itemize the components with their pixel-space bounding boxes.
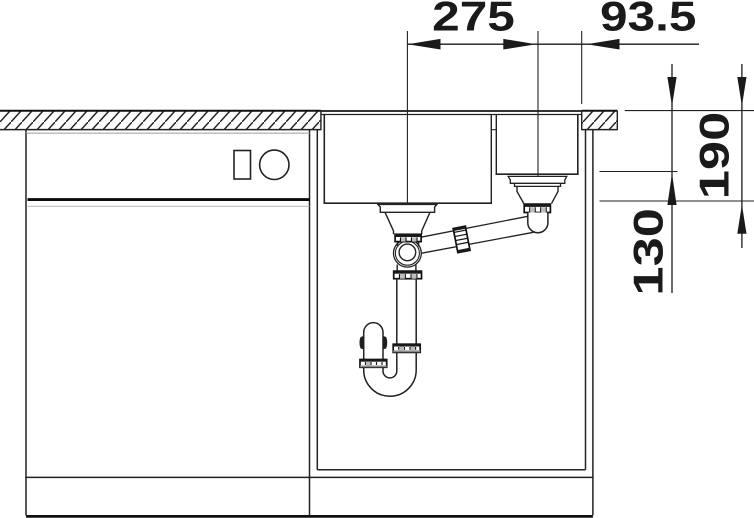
svg-text:93.5: 93.5 (600, 0, 696, 40)
svg-text:190: 190 (691, 112, 738, 200)
svg-text:275: 275 (432, 0, 515, 40)
svg-text:130: 130 (625, 208, 672, 296)
